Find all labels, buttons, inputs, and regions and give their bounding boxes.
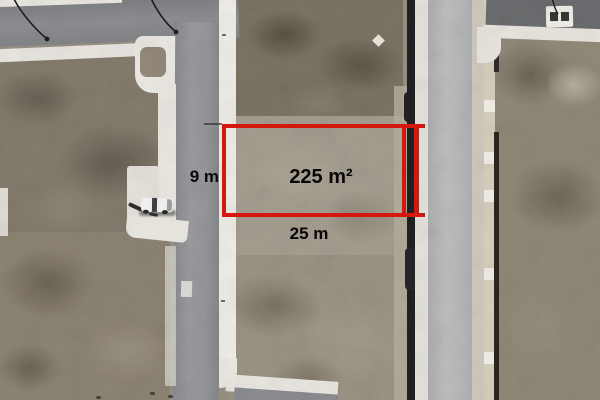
lot-southwest xyxy=(0,232,170,400)
sidewalk-tile xyxy=(484,100,495,112)
area-label: 225 m² xyxy=(264,167,378,187)
car-windshield xyxy=(152,198,157,212)
width-label: 25 m xyxy=(276,225,342,242)
lot-middle-top xyxy=(233,0,403,122)
utility-hatch xyxy=(550,12,558,21)
lot-pin-mark xyxy=(222,34,226,36)
ground-debris xyxy=(96,396,101,399)
car-rear xyxy=(167,199,172,211)
pad-left-edge xyxy=(0,188,8,236)
pencil-tick-mark xyxy=(204,123,222,125)
curb-west-lower xyxy=(165,246,176,386)
road-paint-mark xyxy=(181,281,193,297)
utility-hatch xyxy=(561,12,569,21)
white-car xyxy=(141,198,173,213)
depth-label: 9 m xyxy=(169,168,219,185)
road-left-vertical xyxy=(173,22,222,400)
plot-outline-right-cap xyxy=(414,127,419,217)
ground-debris xyxy=(150,392,155,395)
ground-debris xyxy=(168,395,173,398)
utility-structure xyxy=(546,6,573,27)
car-wheel xyxy=(162,210,168,214)
curb-island-dirt xyxy=(140,47,166,77)
lot-pin-mark xyxy=(221,300,225,302)
lot-east-pale-patch xyxy=(548,50,600,120)
fence-line-east xyxy=(494,132,499,400)
road-right-vertical xyxy=(428,0,473,400)
aerial-land-plot-photo: 9 m 225 m² 25 m xyxy=(0,0,600,400)
